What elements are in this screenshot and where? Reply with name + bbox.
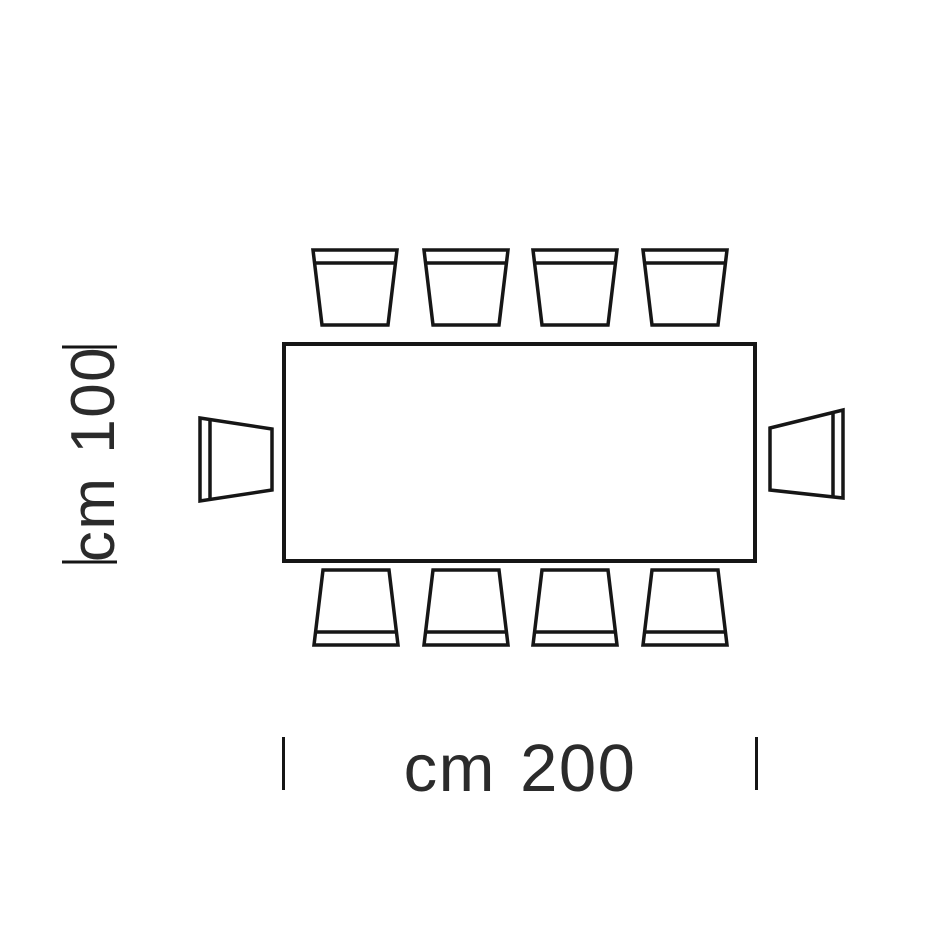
diagram-canvas: cm 100 cm 200 (0, 0, 950, 950)
chair-top-3 (533, 250, 617, 325)
chair-bottom-2 (424, 570, 508, 645)
chair-top-4 (643, 250, 727, 325)
chair-top-2 (424, 250, 508, 325)
table-top (284, 344, 755, 561)
depth-dim-label: cm 100 (59, 346, 128, 562)
chair-bottom-4 (643, 570, 727, 645)
chair-bottom-3 (533, 570, 617, 645)
chair-bottom-1 (314, 570, 398, 645)
chair-right (770, 410, 843, 498)
diagram-svg: cm 100 cm 200 (0, 0, 950, 950)
width-dim-label: cm 200 (404, 731, 637, 806)
chair-left (200, 418, 272, 501)
chair-top-1 (313, 250, 397, 325)
